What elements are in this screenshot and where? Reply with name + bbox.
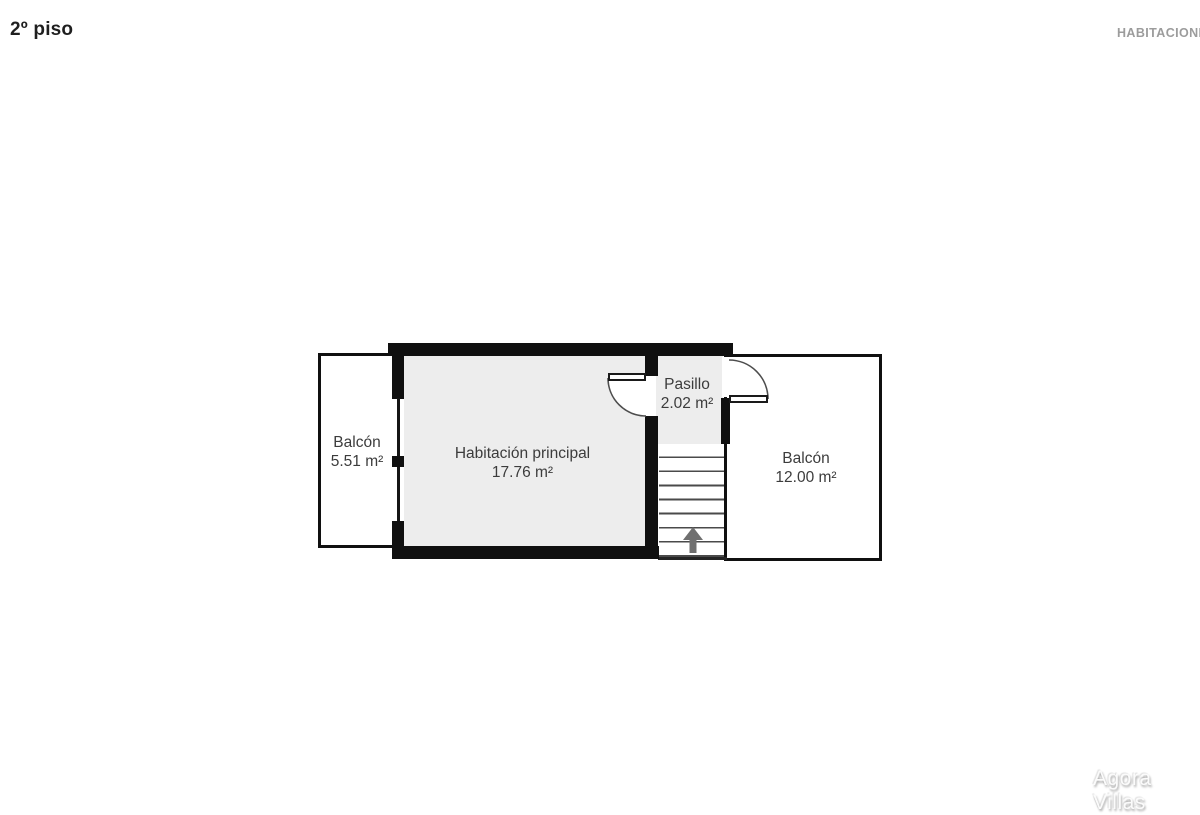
room-label-main-bedroom: Habitación principal 17.76 m² [430, 444, 615, 482]
room-label-balcony-left: Balcón 5.51 m² [300, 433, 414, 471]
room-area: 5.51 m² [300, 452, 414, 471]
room-name: Pasillo [642, 375, 732, 394]
stairs-up-arrow-icon [683, 527, 703, 553]
header-section-label: HABITACIONES [1117, 26, 1200, 40]
room-label-balcony-right: Balcón 12.00 m² [744, 449, 868, 487]
room-name: Balcón [744, 449, 868, 468]
room-name: Habitación principal [430, 444, 615, 463]
floor-title: 2º piso [10, 19, 73, 41]
room-label-hallway: Pasillo 2.02 m² [642, 375, 732, 413]
room-area: 17.76 m² [430, 463, 615, 482]
room-area: 2.02 m² [642, 394, 732, 413]
watermark: Agora Villas [1093, 767, 1200, 815]
room-name: Balcón [300, 433, 414, 452]
door-leaf-balcony [729, 395, 768, 403]
door-leaf-bedroom [608, 373, 646, 381]
room-area: 12.00 m² [744, 468, 868, 487]
